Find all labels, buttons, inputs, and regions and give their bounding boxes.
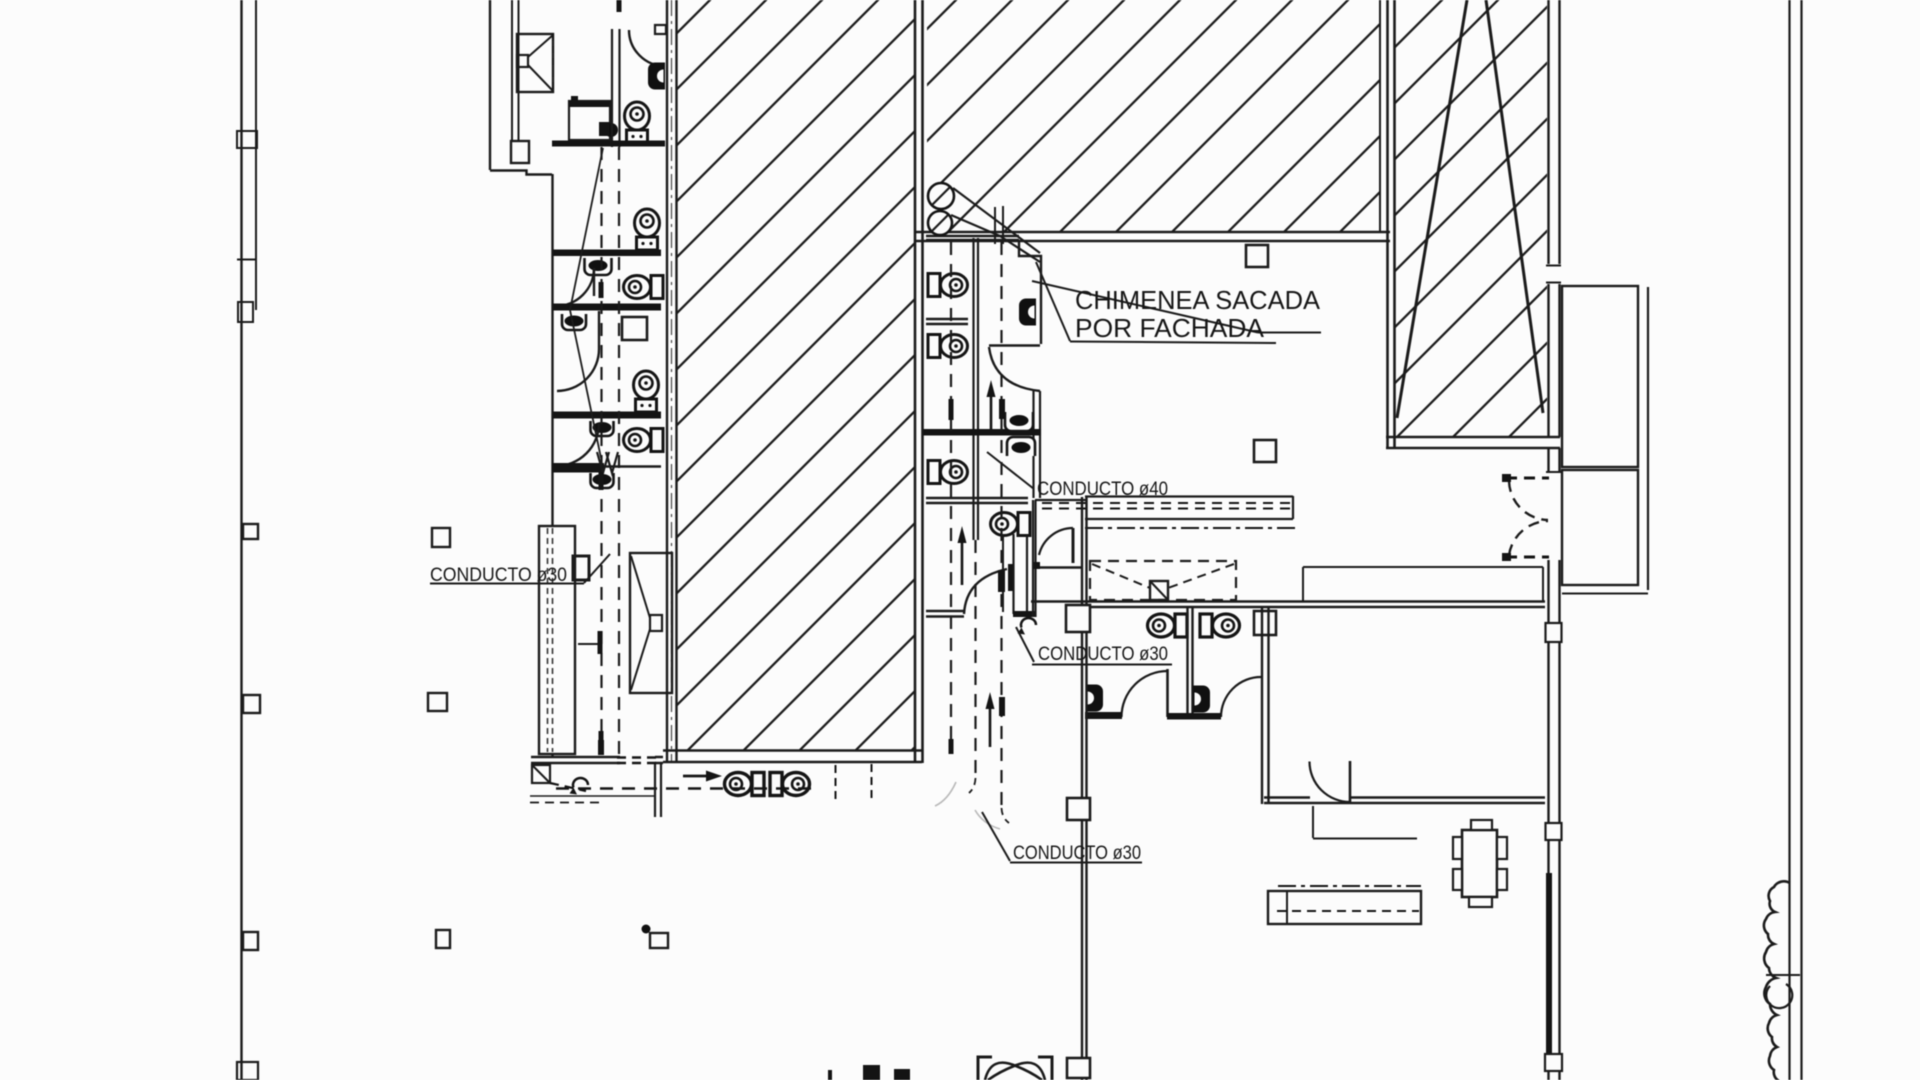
svg-text:CONDUCTO ø30: CONDUCTO ø30 (1038, 643, 1168, 665)
svg-text:CHIMENEA SACADA: CHIMENEA SACADA (1075, 285, 1321, 315)
svg-text:POR FACHADA: POR FACHADA (1075, 313, 1265, 343)
svg-text:CONDUCTO ø30: CONDUCTO ø30 (1013, 842, 1141, 864)
